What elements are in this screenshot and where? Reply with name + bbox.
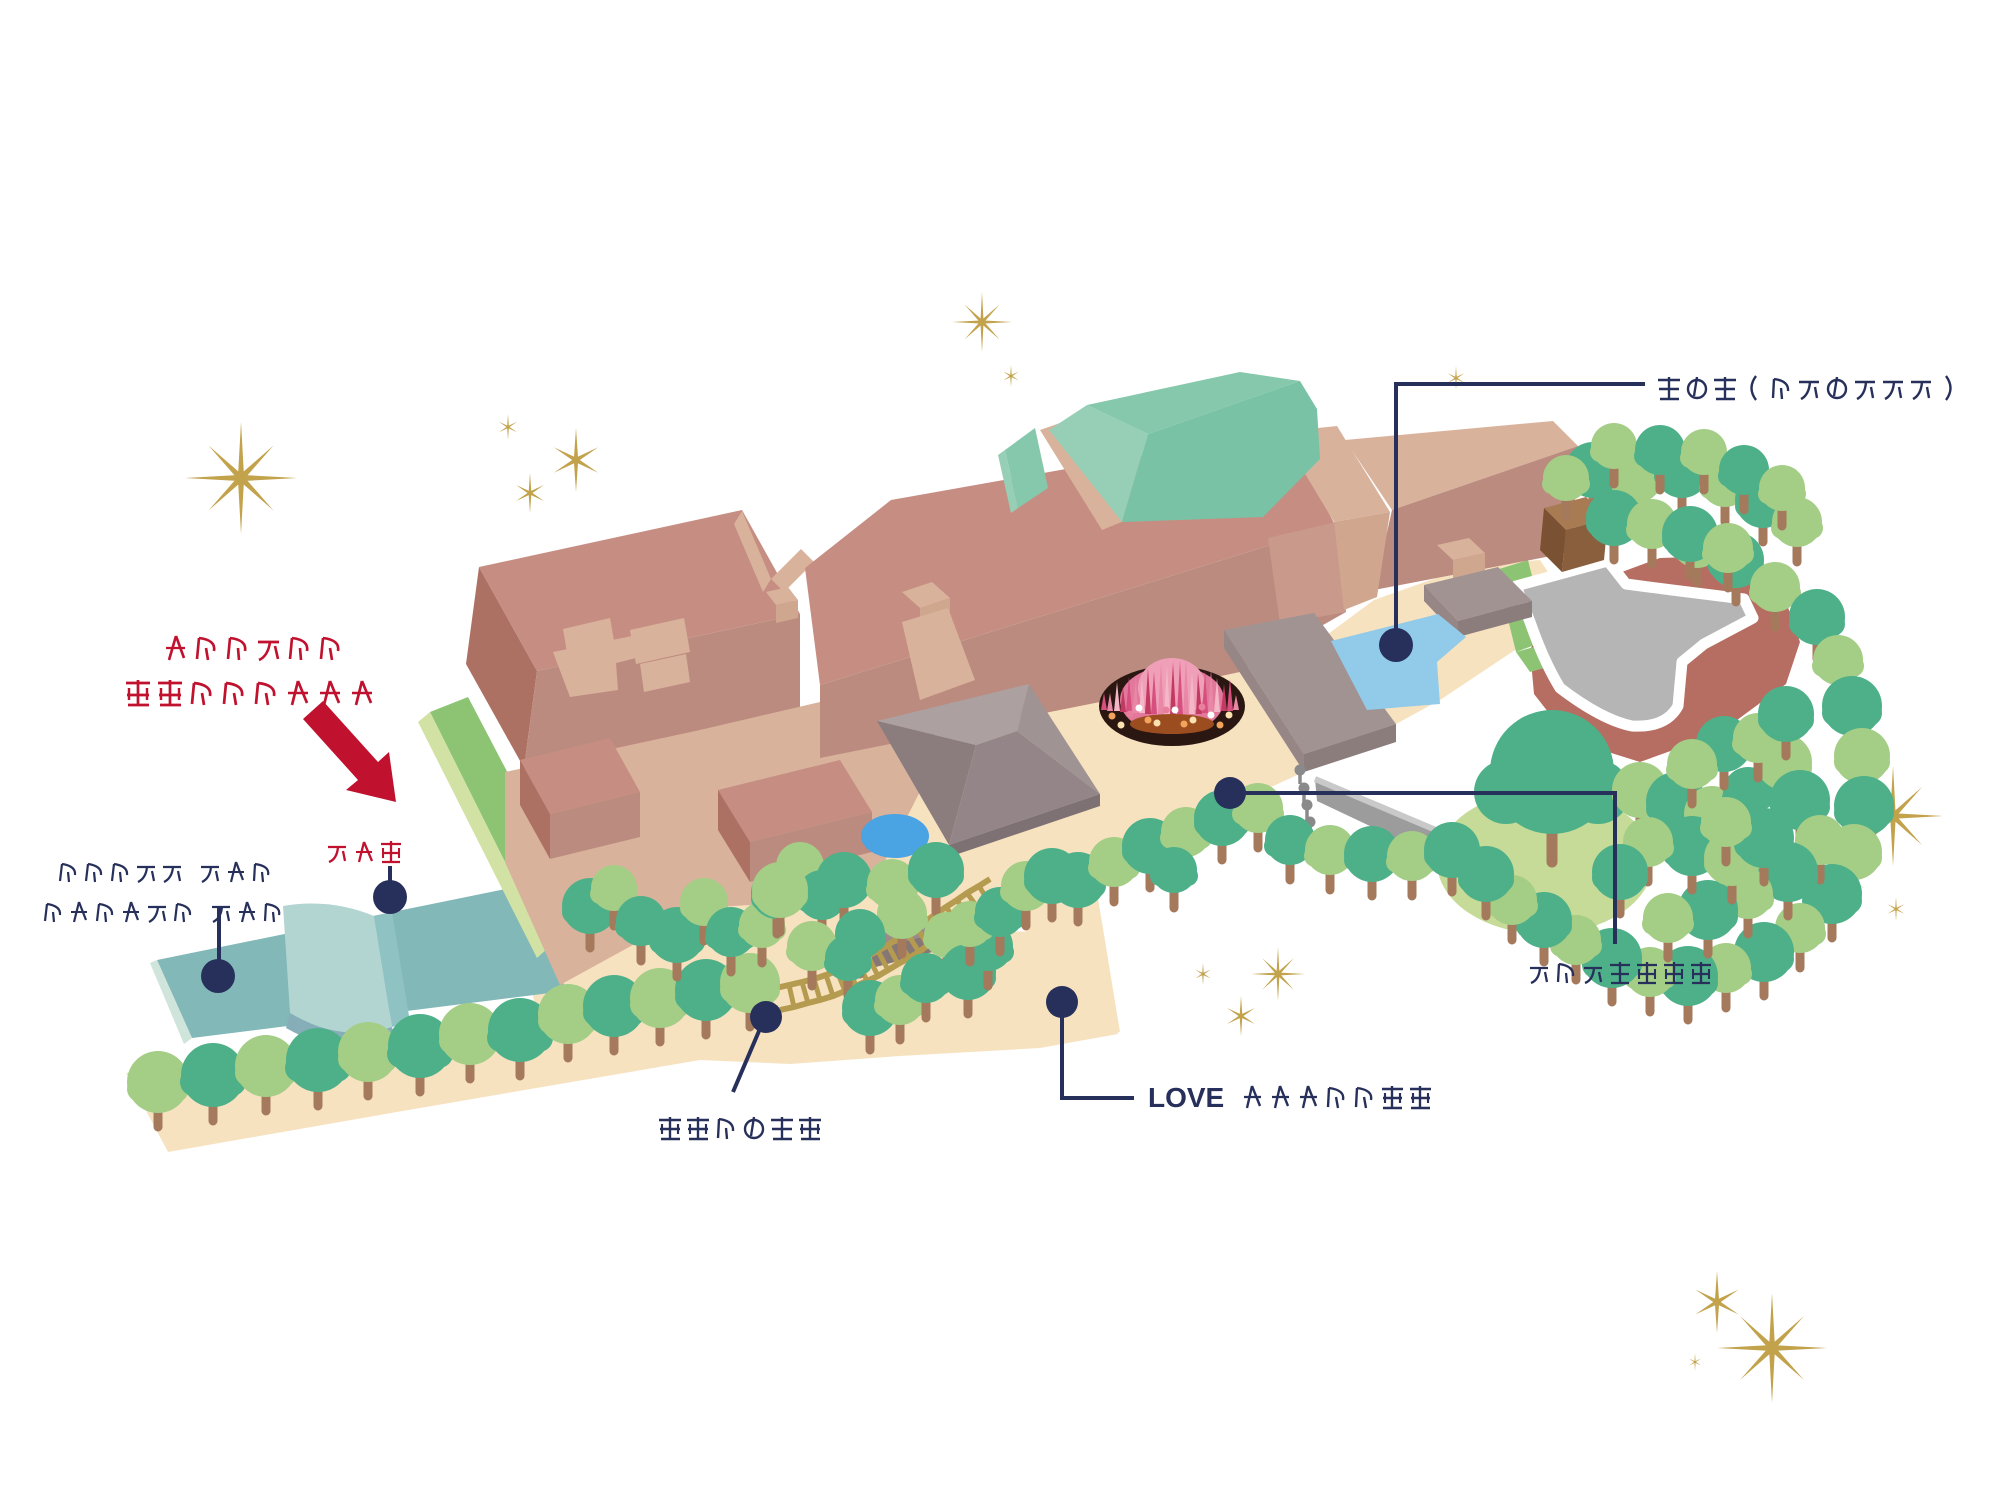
svg-text:LOVE: LOVE bbox=[1148, 1082, 1224, 1113]
